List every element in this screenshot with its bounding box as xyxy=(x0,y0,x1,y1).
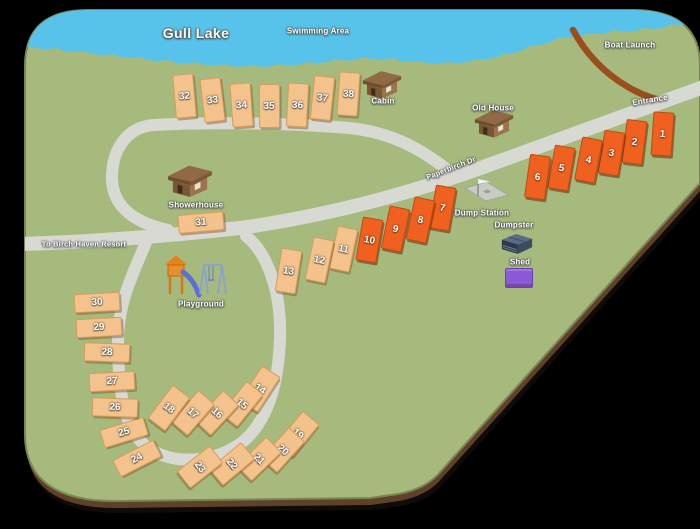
campsite-9: 9 xyxy=(380,205,410,252)
campsite-number: 34 xyxy=(235,99,247,111)
swimming-area-label: Swimming Area xyxy=(287,27,349,36)
campsite-12: 12 xyxy=(304,236,334,283)
campsite-number: 11 xyxy=(337,243,350,256)
campsite-number: 33 xyxy=(206,94,218,106)
campsite-number: 5 xyxy=(557,162,564,174)
dumpster-icon xyxy=(500,231,534,256)
campsite-number: 27 xyxy=(106,375,118,387)
campsite-29: 29 xyxy=(76,316,123,337)
campsite-number: 17 xyxy=(185,405,201,421)
playground-label: Playground xyxy=(178,300,224,309)
campground-map: 1234567891011121314151617181920212223242… xyxy=(0,0,700,529)
campsite-number: 9 xyxy=(391,223,399,235)
shed-label: Shed xyxy=(510,258,530,267)
entrance-label: Entrance xyxy=(632,93,669,107)
shed-icon xyxy=(505,268,533,288)
showerhouse-label: Showerhouse xyxy=(169,201,224,210)
campsite-number: 31 xyxy=(195,216,207,228)
campsite-number: 28 xyxy=(101,346,113,357)
campsite-31: 31 xyxy=(177,211,224,234)
campsite-5: 5 xyxy=(547,145,575,192)
campsite-34: 34 xyxy=(229,82,253,127)
campsite-number: 7 xyxy=(438,202,445,214)
campsite-number: 37 xyxy=(316,92,328,104)
campsite-24: 24 xyxy=(112,439,162,477)
campsite-number: 29 xyxy=(93,321,105,333)
campsite-2: 2 xyxy=(621,119,647,165)
campsite-25: 25 xyxy=(99,416,149,448)
campsite-number: 4 xyxy=(584,154,592,166)
campsite-number: 22 xyxy=(224,456,240,472)
campsite-37: 37 xyxy=(309,75,334,121)
campsite-number: 10 xyxy=(363,234,376,247)
dump-station-label: Dump Station xyxy=(455,209,509,218)
campsite-36: 36 xyxy=(285,82,308,127)
campsite-3: 3 xyxy=(597,130,625,177)
playground-icon xyxy=(152,252,228,300)
campsite-number: 3 xyxy=(607,147,614,159)
old-house-label: Old House xyxy=(472,104,514,113)
campsite-number: 26 xyxy=(109,401,121,412)
campsite-number: 2 xyxy=(631,136,638,148)
campsite-27: 27 xyxy=(89,370,136,391)
campsite-number: 32 xyxy=(178,90,190,102)
campsite-number: 1 xyxy=(659,128,665,139)
campsite-8: 8 xyxy=(405,196,435,243)
campsite-number: 24 xyxy=(130,451,145,466)
to-resort-label: To Birch Haven Resort xyxy=(42,240,127,249)
dumpster-label: Dumpster xyxy=(495,221,534,230)
cabin-label: Cabin xyxy=(371,97,394,106)
campsite-number: 30 xyxy=(91,296,103,308)
campsite-38: 38 xyxy=(336,71,360,116)
campsite-26: 26 xyxy=(92,397,139,418)
campsite-number: 13 xyxy=(282,265,295,278)
cabin-icon xyxy=(362,64,402,100)
campsite-number: 18 xyxy=(161,400,177,415)
campsite-number: 35 xyxy=(263,101,274,112)
campsite-number: 12 xyxy=(312,253,325,266)
lake-name-label: Gull Lake xyxy=(163,25,230,41)
campsite-6: 6 xyxy=(524,154,551,200)
campsite-number: 25 xyxy=(117,425,131,439)
campsite-23: 23 xyxy=(177,445,224,488)
boat-launch-label: Boat Launch xyxy=(605,41,656,50)
showerhouse-icon xyxy=(167,158,213,198)
campsite-35: 35 xyxy=(259,84,280,128)
campsite-11: 11 xyxy=(328,225,358,272)
campsite-number: 6 xyxy=(533,171,540,183)
campsite-10: 10 xyxy=(355,217,383,264)
campsite-number: 23 xyxy=(192,459,208,475)
campsite-30: 30 xyxy=(74,291,121,312)
campsite-1: 1 xyxy=(650,111,674,156)
campsite-13: 13 xyxy=(274,248,302,295)
campsite-28: 28 xyxy=(84,342,131,363)
campsite-number: 38 xyxy=(342,88,354,100)
campsite-number: 36 xyxy=(291,99,303,111)
campsite-32: 32 xyxy=(172,73,197,119)
campsite-33: 33 xyxy=(199,77,225,123)
campsite-number: 8 xyxy=(416,214,424,226)
campsite-4: 4 xyxy=(573,136,602,183)
